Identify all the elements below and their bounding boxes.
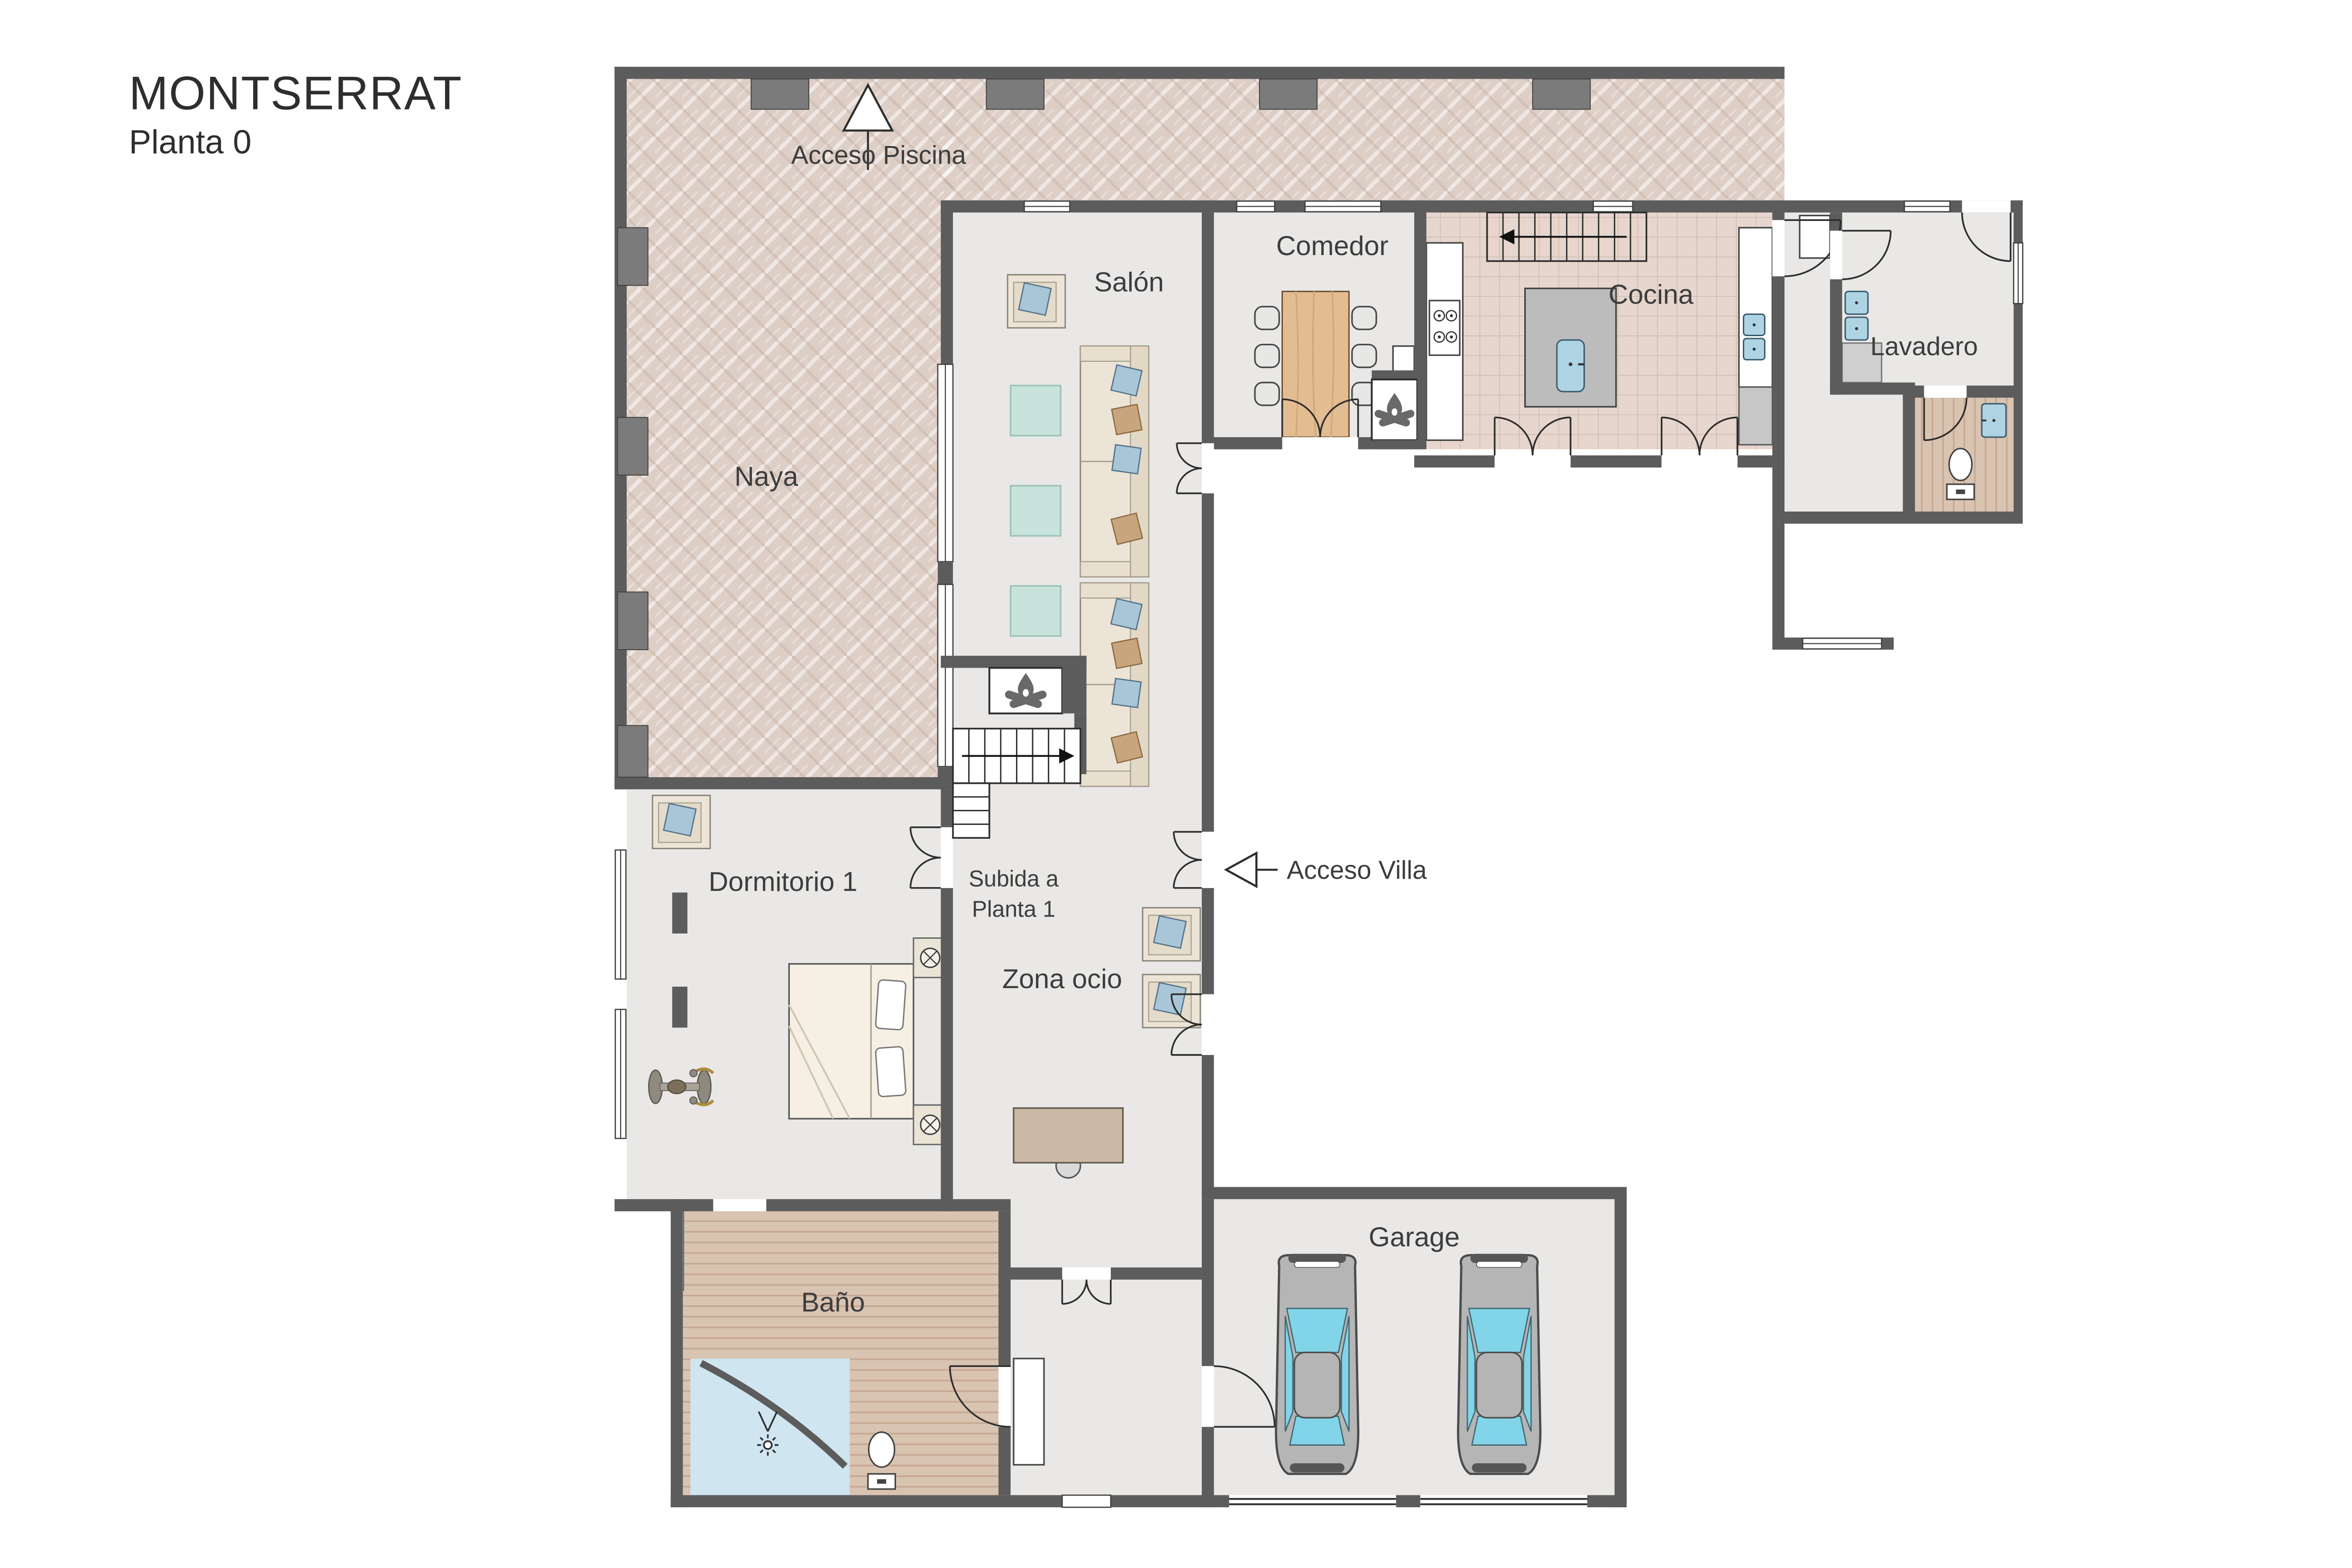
- label-lavadero: Lavadero: [1870, 332, 1978, 361]
- vestibule-closet: [1800, 216, 1830, 258]
- wall-stub: [672, 987, 687, 1027]
- naya-texture: [627, 76, 953, 786]
- label-bano: Baño: [801, 1287, 865, 1318]
- pillar: [1260, 79, 1318, 109]
- pouf: [1011, 486, 1061, 536]
- toilet: [1947, 449, 1974, 499]
- bed-pillow: [875, 980, 906, 1030]
- label-subida-1: Subida a: [969, 867, 1059, 892]
- dining-chair: [1255, 307, 1279, 330]
- bed-pillow: [875, 1046, 906, 1097]
- armchair: [652, 796, 710, 849]
- pouf: [1011, 385, 1061, 436]
- armchair: [1007, 275, 1065, 328]
- armchair: [1143, 908, 1200, 961]
- pillar: [618, 417, 648, 475]
- car-icon: [1458, 1254, 1540, 1474]
- pouf: [1011, 586, 1061, 636]
- kitchen-cabinet: [1739, 387, 1772, 445]
- lamp-icon: [921, 1115, 940, 1134]
- label-zona-ocio: Zona ocio: [1002, 964, 1122, 994]
- courtyard: [1214, 449, 1773, 1187]
- terrace-texture: [941, 76, 1785, 212]
- car-icon: [1276, 1254, 1358, 1474]
- label-subida-2: Planta 1: [972, 897, 1055, 922]
- pillar: [751, 79, 809, 109]
- dining-chair: [1255, 345, 1279, 367]
- label-garage: Garage: [1369, 1222, 1460, 1252]
- page-title: MONTSERRAT: [129, 67, 462, 119]
- entry-closet: [1014, 1358, 1044, 1465]
- floor-plan: MONTSERRAT Planta 0 Acceso Piscina Naya …: [0, 0, 2352, 1568]
- desk: [1014, 1108, 1123, 1163]
- stove: [1429, 301, 1460, 355]
- sofa: [1080, 583, 1149, 786]
- dining-chair: [1352, 307, 1376, 330]
- pillar: [1533, 79, 1591, 109]
- label-naya: Naya: [734, 461, 798, 492]
- pillar: [618, 228, 648, 285]
- label-cocina: Cocina: [1609, 279, 1694, 310]
- lamp-icon: [921, 948, 940, 967]
- label-salon: Salón: [1094, 267, 1164, 298]
- dining-chair: [1352, 345, 1376, 367]
- pillar: [618, 725, 648, 777]
- dining-table: [1282, 292, 1349, 437]
- wall-stub: [672, 892, 687, 933]
- label-dormitorio: Dormitorio 1: [709, 867, 858, 897]
- bed: [789, 964, 913, 1119]
- kitchen-counter-right: [1739, 228, 1772, 387]
- dining-chair: [1255, 383, 1279, 405]
- pillar: [618, 592, 648, 650]
- toilet: [868, 1432, 896, 1489]
- label-comedor: Comedor: [1276, 231, 1389, 261]
- sofa: [1080, 346, 1149, 577]
- page-subtitle: Planta 0: [129, 123, 251, 160]
- label-acceso-piscina: Acceso Piscina: [791, 141, 967, 170]
- pillar: [986, 79, 1044, 109]
- label-acceso-villa: Acceso Villa: [1287, 856, 1427, 885]
